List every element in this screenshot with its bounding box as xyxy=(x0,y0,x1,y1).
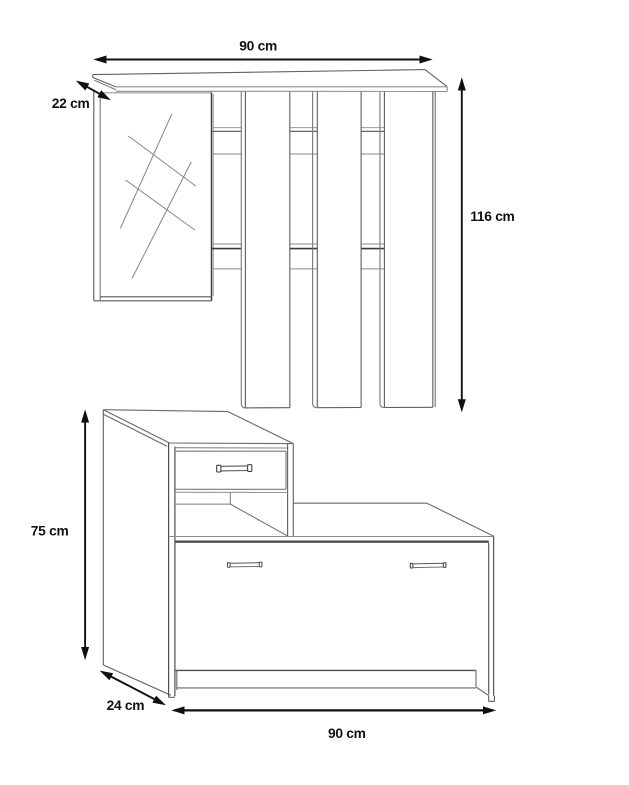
svg-text:90 cm: 90 cm xyxy=(239,38,277,53)
svg-text:75 cm: 75 cm xyxy=(31,523,69,538)
svg-text:90 cm: 90 cm xyxy=(328,726,366,741)
svg-text:116 cm: 116 cm xyxy=(470,209,514,224)
svg-text:24 cm: 24 cm xyxy=(107,698,145,713)
svg-text:22 cm: 22 cm xyxy=(52,96,90,111)
